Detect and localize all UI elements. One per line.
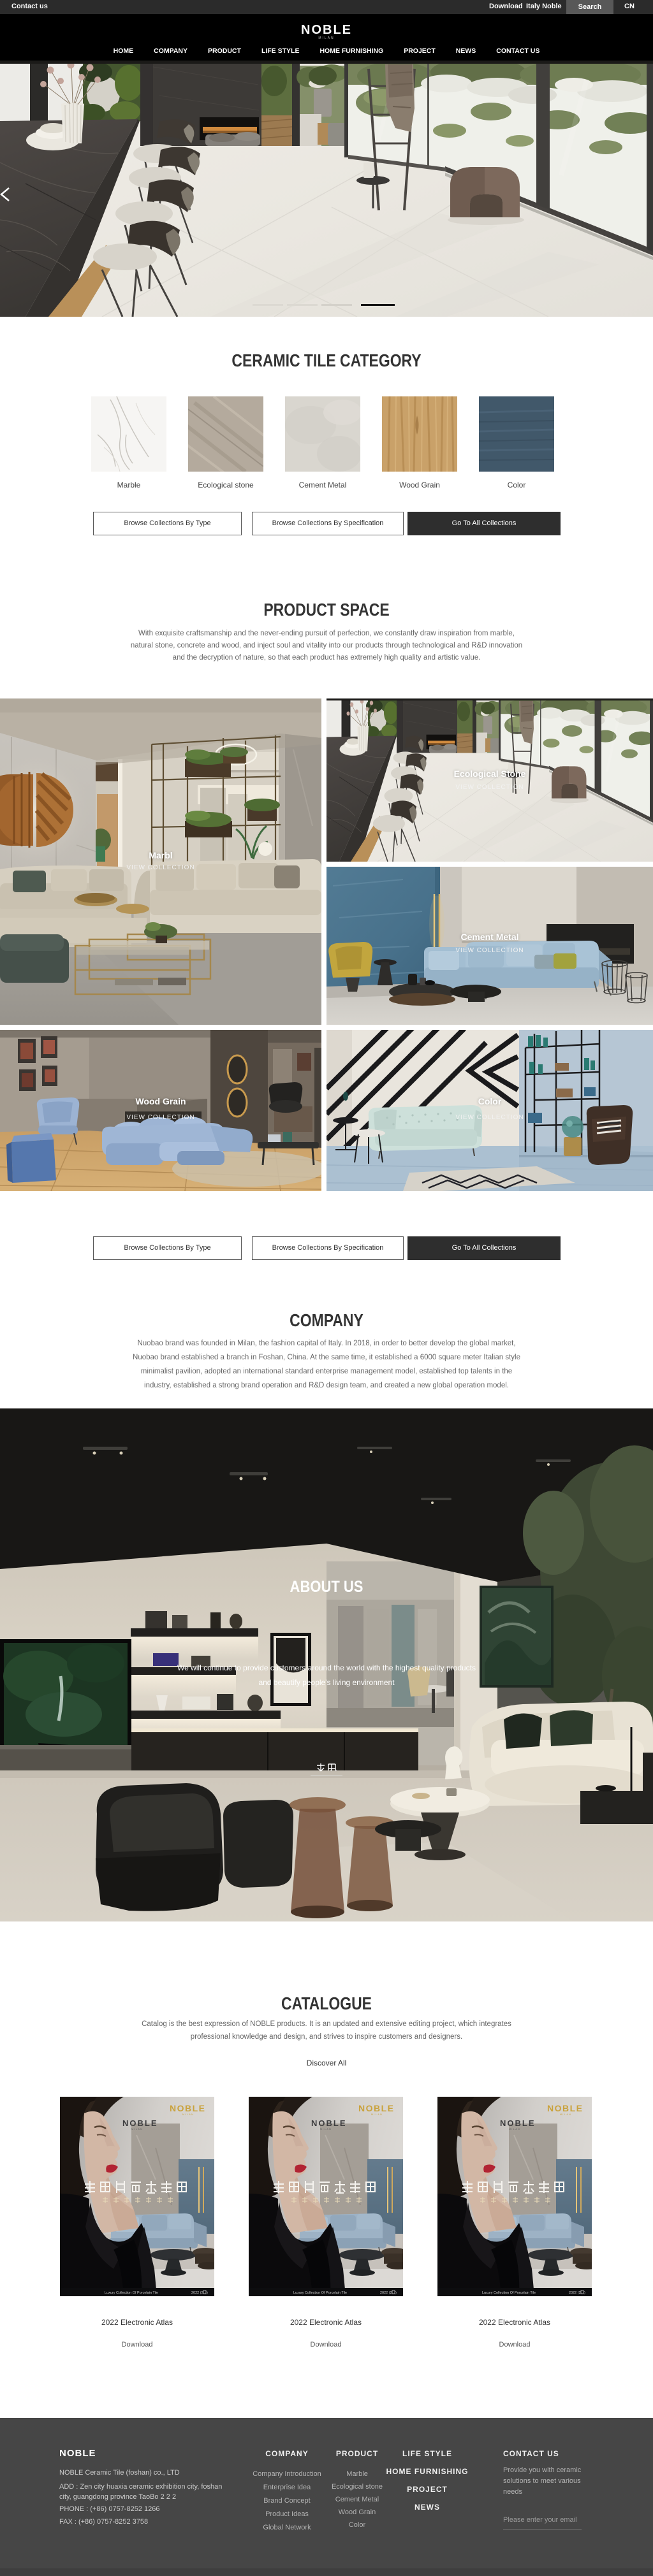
svg-text:MILAN: MILAN [131, 2128, 143, 2131]
svg-text:MILAN: MILAN [182, 2113, 194, 2116]
svg-text:): ) [207, 2291, 208, 2295]
svg-text:2022 (2: 2022 (2 [191, 2291, 203, 2295]
svg-text:NOBLE: NOBLE [122, 2118, 158, 2128]
svg-text:NOBLE: NOBLE [170, 2103, 206, 2113]
svg-text:Luxury Collection Of Porcelain: Luxury Collection Of Porcelain Tile [105, 2291, 158, 2295]
